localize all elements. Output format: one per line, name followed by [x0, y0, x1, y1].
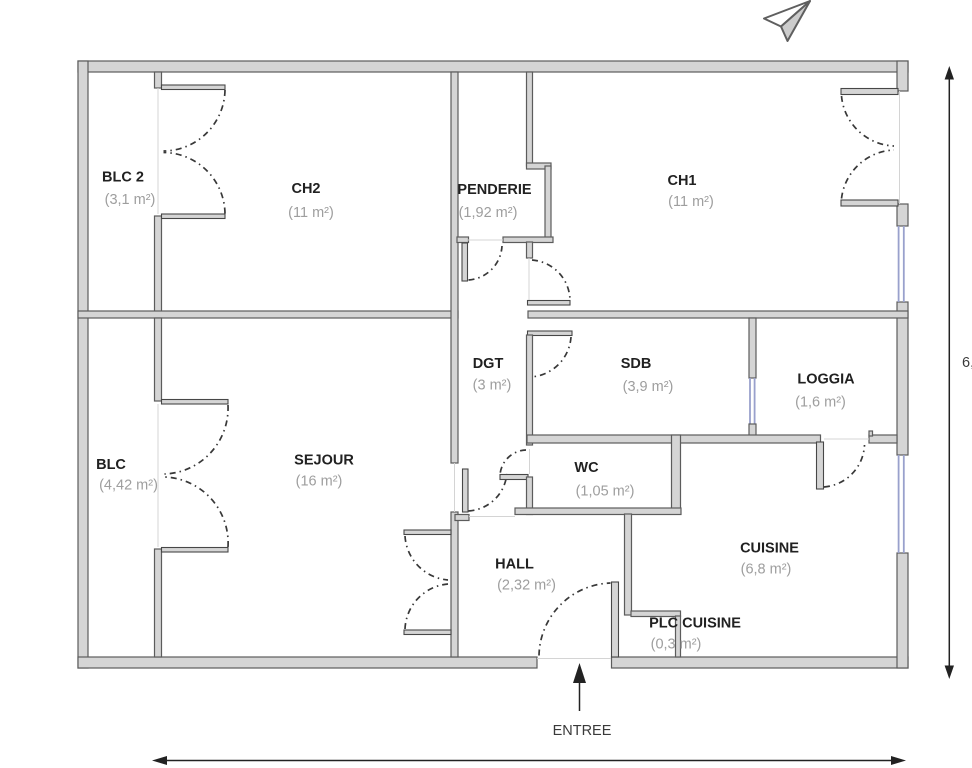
- svg-text:(11 m²): (11 m²): [668, 194, 714, 210]
- svg-text:CH1: CH1: [667, 173, 696, 189]
- svg-text:SDB: SDB: [621, 356, 652, 372]
- svg-text:CH2: CH2: [291, 181, 320, 197]
- svg-text:PENDERIE: PENDERIE: [457, 182, 531, 198]
- svg-text:WC: WC: [574, 460, 599, 476]
- svg-text:CUISINE: CUISINE: [740, 541, 799, 557]
- svg-text:LOGGIA: LOGGIA: [797, 372, 855, 388]
- svg-text:(6,8 m²): (6,8 m²): [741, 562, 792, 578]
- svg-text:DGT: DGT: [473, 356, 504, 372]
- svg-text:BLC: BLC: [96, 457, 126, 473]
- svg-text:SEJOUR: SEJOUR: [294, 453, 354, 469]
- svg-text:(3,9 m²): (3,9 m²): [623, 379, 674, 395]
- svg-text:(1,6 m²): (1,6 m²): [795, 395, 846, 411]
- svg-text:PLC CUISINE: PLC CUISINE: [649, 616, 741, 632]
- svg-text:(1,92 m²): (1,92 m²): [459, 205, 518, 221]
- svg-text:6,10 m: 6,10 m: [962, 355, 972, 371]
- svg-text:HALL: HALL: [495, 557, 534, 573]
- svg-text:(3,1 m²): (3,1 m²): [105, 192, 156, 208]
- svg-text:(4,42 m²): (4,42 m²): [99, 478, 158, 494]
- svg-text:(11 m²): (11 m²): [288, 205, 334, 221]
- svg-text:(2,32 m²): (2,32 m²): [497, 578, 556, 594]
- svg-text:BLC 2: BLC 2: [102, 170, 144, 186]
- svg-text:(3 m²): (3 m²): [473, 378, 512, 394]
- svg-text:(0,3 m²): (0,3 m²): [651, 637, 702, 653]
- svg-text:(16 m²): (16 m²): [296, 474, 343, 490]
- svg-text:(1,05 m²): (1,05 m²): [576, 484, 635, 500]
- svg-text:ENTREE: ENTREE: [553, 723, 612, 739]
